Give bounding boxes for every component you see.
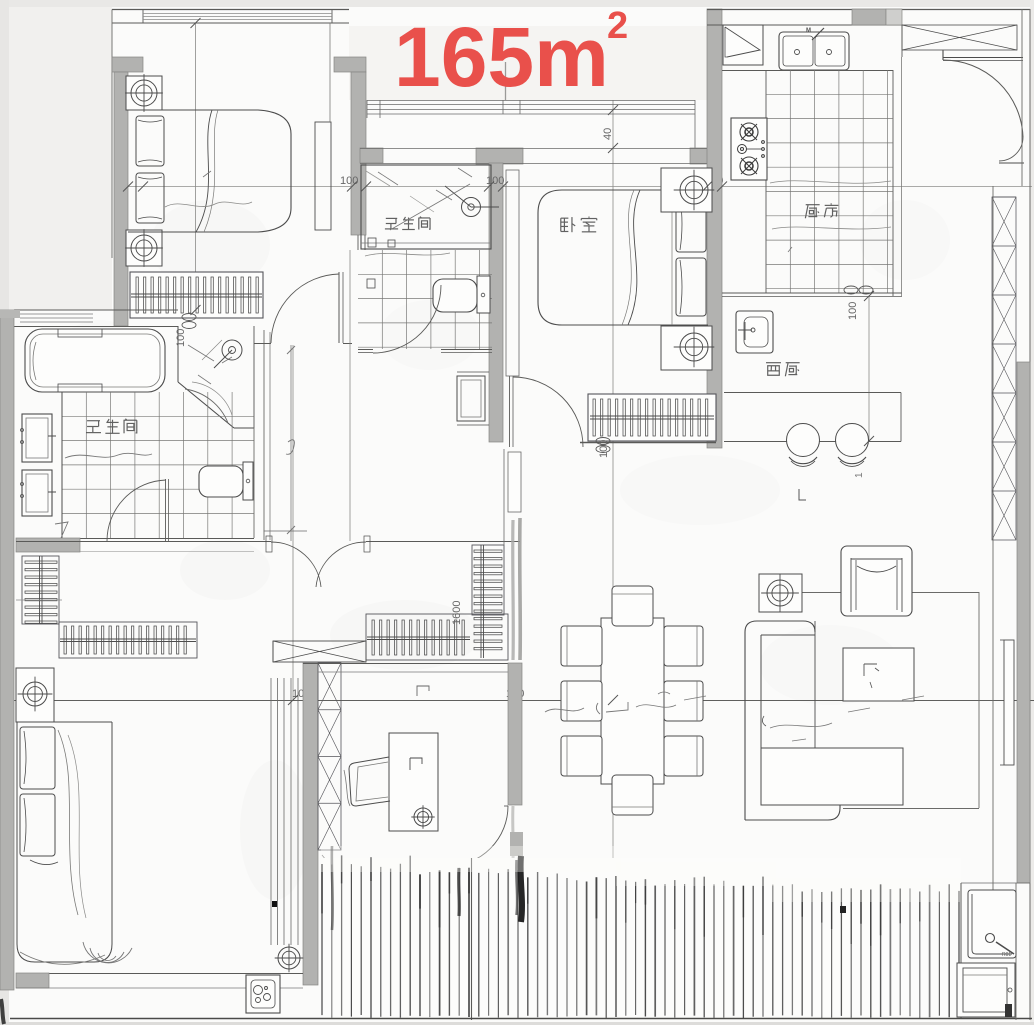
svg-text:100: 100 [175,329,187,347]
svg-text:1600: 1600 [451,601,463,625]
svg-text:100: 100 [486,175,504,187]
svg-text:M: M [806,28,811,34]
svg-text:2: 2 [607,5,628,47]
svg-text:100: 100 [598,440,610,458]
svg-text:1: 1 [854,472,865,478]
svg-text:100: 100 [340,175,358,187]
svg-text:R01: R01 [1002,952,1011,958]
svg-text:165m: 165m [394,10,609,104]
svg-text:40: 40 [602,128,614,140]
svg-text:100: 100 [847,302,859,320]
